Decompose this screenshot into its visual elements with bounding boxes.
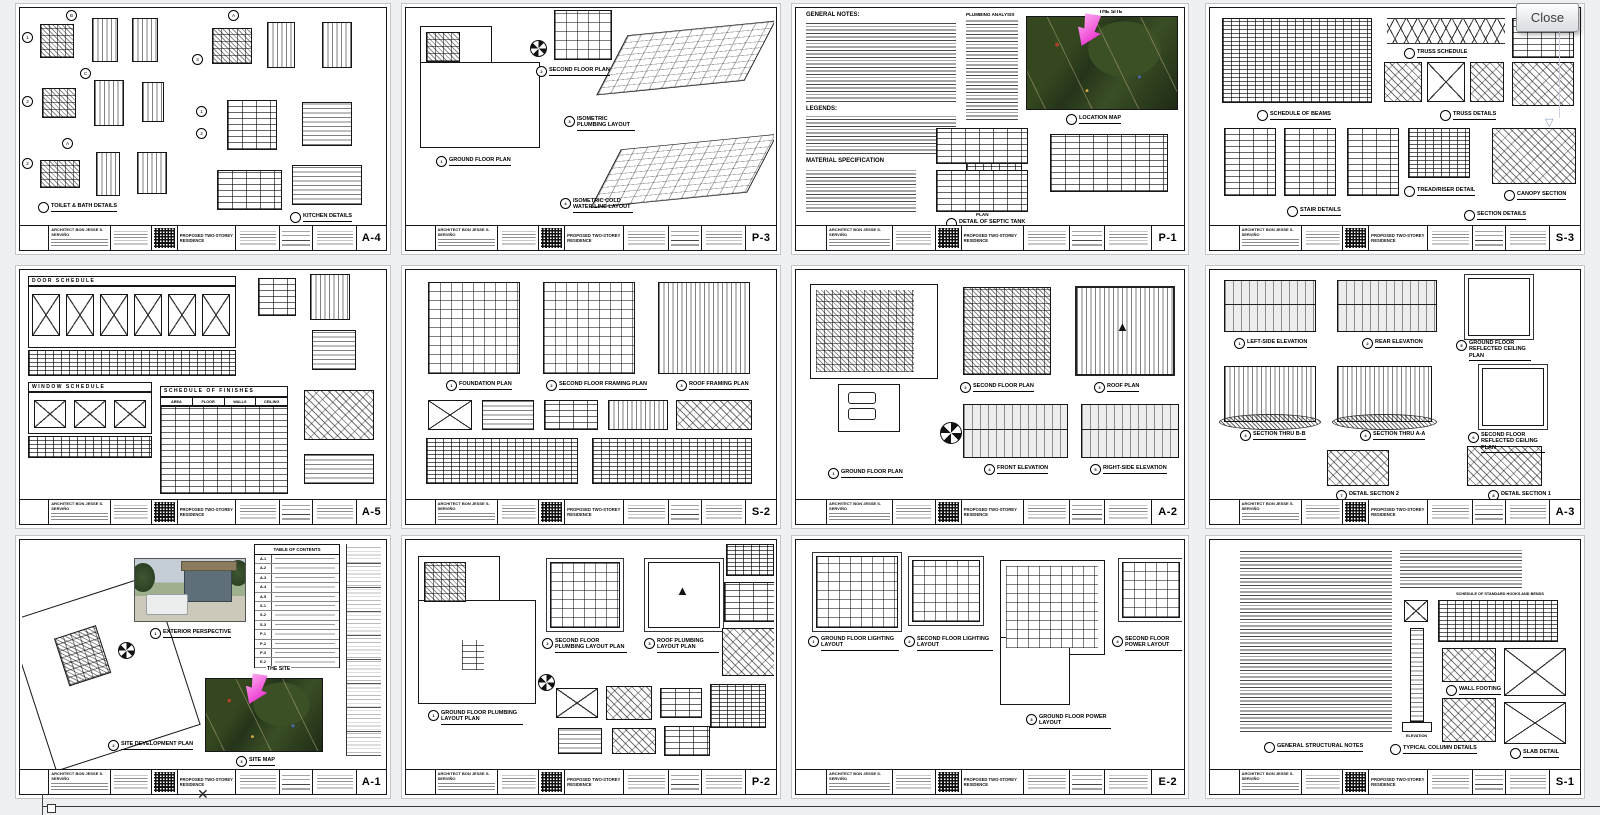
toc-row-code: A-5 bbox=[255, 593, 272, 601]
architect-name: ARCHITECT BON JESSE S. SERVIÑO bbox=[1242, 772, 1300, 782]
sheet-content: 2SITE DEVELOPMENT PLAN 1EXTERIOR PERSPEC… bbox=[22, 542, 384, 769]
titleblock-margin bbox=[20, 500, 49, 524]
sheet-s1[interactable]: GENERAL STRUCTURAL NOTES SCHEDULE OF STA… bbox=[1206, 536, 1584, 798]
stair-plan-figure bbox=[258, 278, 296, 316]
door-elevation-figure bbox=[32, 294, 60, 336]
seal-cell bbox=[893, 226, 936, 250]
beam-detail-figure bbox=[676, 400, 752, 430]
sheet-p3[interactable]: 1GROUND FLOOR PLAN 2SECOND FLOOR PLAN 3I… bbox=[402, 4, 780, 254]
grid-bubble: 1 bbox=[22, 32, 33, 43]
info-cell bbox=[313, 226, 357, 250]
window-elevation-figure bbox=[114, 400, 146, 428]
sheet-a4[interactable]: 1 B 2 C 2 A 3 A 1 2 TOILET & BATH DETAIL… bbox=[16, 4, 390, 254]
detail-section-2-figure bbox=[1327, 450, 1389, 486]
sheet-e2[interactable]: 1GROUND FLOOR LIGHTING LAYOUT 2SECOND FL… bbox=[792, 536, 1188, 798]
toc-row: S-1 bbox=[255, 602, 339, 611]
sheet-frame: 1GROUND FLOOR PLUMBING LAYOUT PLAN 2SECO… bbox=[405, 539, 777, 795]
architect-name: ARCHITECT BON JESSE S. SERVIÑO bbox=[51, 502, 108, 512]
info-cell bbox=[702, 770, 746, 794]
figure-caption: 4FRONT ELEVATION bbox=[984, 464, 1048, 475]
qr-seal bbox=[152, 770, 178, 794]
sheet-content: 1LEFT-SIDE ELEVATION 2REAR ELEVATION 5GR… bbox=[1212, 272, 1578, 499]
truss-detail-figure bbox=[1470, 62, 1504, 102]
revision-cell bbox=[1070, 770, 1105, 794]
revision-cell bbox=[669, 500, 702, 524]
north-arrow-icon bbox=[538, 674, 555, 691]
general-notes-text bbox=[806, 22, 956, 102]
stair-section-figure bbox=[312, 330, 356, 370]
micro-text bbox=[51, 239, 108, 246]
micro-text bbox=[1242, 239, 1300, 246]
project-title: PROPOSED TWO-STOREY RESIDENCE bbox=[180, 233, 234, 244]
toc-row: A-5 bbox=[255, 593, 339, 602]
qr-seal bbox=[936, 770, 962, 794]
toc-row-desc bbox=[272, 593, 339, 601]
callout-circle bbox=[38, 202, 49, 213]
sheet-frame: 2SITE DEVELOPMENT PLAN 1EXTERIOR PERSPEC… bbox=[19, 539, 387, 795]
callout-circle: 1 bbox=[446, 380, 457, 391]
callout-circle bbox=[1504, 190, 1515, 201]
callout-circle bbox=[1464, 210, 1475, 221]
sheet-content: 1FOUNDATION PLAN 2SECOND FLOOR FRAMING P… bbox=[408, 272, 774, 499]
toc-row-desc bbox=[272, 649, 339, 657]
footing-detail-figure bbox=[428, 400, 472, 430]
callout-circle: 5 bbox=[1090, 464, 1101, 475]
hooks-bends-table bbox=[1438, 600, 1558, 642]
titleblock-margin bbox=[406, 226, 436, 250]
figure-caption: 5GROUND FLOOR REFLECTED CEILING PLAN bbox=[1456, 340, 1531, 361]
stair-symbol bbox=[462, 640, 484, 670]
sheet-number: S-3 bbox=[1550, 226, 1580, 250]
sheet-s2[interactable]: 1FOUNDATION PLAN 2SECOND FLOOR FRAMING P… bbox=[402, 266, 780, 528]
title-block: ARCHITECT BON JESSE S. SERVIÑO PROPOSED … bbox=[796, 499, 1184, 524]
site-arrow-icon bbox=[1076, 10, 1108, 52]
figure-caption: GENERAL STRUCTURAL NOTES bbox=[1264, 742, 1363, 753]
callout-circle: 3 bbox=[644, 638, 655, 649]
support-detail-figure bbox=[1512, 62, 1574, 106]
page-edge-line bbox=[42, 794, 43, 815]
figure-caption: TOILET & BATH DETAILS bbox=[38, 202, 117, 213]
project-cell: PROPOSED TWO-STOREY RESIDENCE bbox=[962, 770, 1024, 794]
finishes-table-body bbox=[160, 406, 288, 494]
sheet-a2[interactable]: 1GROUND FLOOR PLAN 2SECOND FLOOR PLAN ▲ … bbox=[792, 266, 1188, 528]
figure-caption: 1FOUNDATION PLAN bbox=[446, 380, 512, 391]
grid-bubble: B bbox=[66, 10, 77, 21]
sheet-frame: 1 B 2 C 2 A 3 A 1 2 TOILET & BATH DETAIL… bbox=[19, 7, 387, 251]
micro-text bbox=[829, 783, 890, 790]
kitchen-elevation-figure bbox=[302, 102, 352, 146]
page-corner-marker bbox=[47, 804, 56, 813]
figure-caption: 3ROOF PLAN bbox=[1094, 382, 1139, 393]
seal-cell bbox=[1302, 226, 1343, 250]
callout-circle bbox=[1510, 748, 1521, 759]
qr-seal bbox=[152, 226, 178, 250]
title-block: ARCHITECT BON JESSE S. SERVIÑO PROPOSED … bbox=[1210, 769, 1580, 794]
tread-riser-figure bbox=[1408, 128, 1470, 178]
figure-caption: 1GROUND FLOOR PLAN bbox=[828, 468, 903, 479]
grid-bubble: 2 bbox=[22, 96, 33, 107]
owner-cell bbox=[236, 770, 280, 794]
figure-caption: 7DETAIL SECTION 2 bbox=[1336, 490, 1399, 499]
owner-cell bbox=[236, 226, 280, 250]
title-block: ARCHITECT BON JESSE S. SERVIÑO PROPOSED … bbox=[796, 225, 1184, 250]
figure-caption: SECTION DETAILS bbox=[1464, 210, 1526, 221]
figure-caption: TRUSS DETAILS bbox=[1440, 110, 1496, 121]
plumbing-detail-figure bbox=[724, 582, 774, 622]
project-title: PROPOSED TWO-STOREY RESIDENCE bbox=[1371, 777, 1425, 788]
callout-circle bbox=[1446, 685, 1457, 696]
column-base-figure bbox=[1402, 722, 1432, 732]
title-block: ARCHITECT BON JESSE S. SERVIÑO PROPOSED … bbox=[20, 499, 386, 524]
sheet-number: A-3 bbox=[1550, 500, 1580, 524]
building-footprint bbox=[54, 625, 111, 686]
project-cell: PROPOSED TWO-STOREY RESIDENCE bbox=[1369, 500, 1428, 524]
revision-cell bbox=[669, 226, 702, 250]
toc-title: TABLE OF CONTENTS bbox=[255, 545, 339, 555]
toilet-elevation-figure bbox=[132, 18, 158, 62]
stair-figure bbox=[1284, 128, 1336, 196]
titleblock-margin bbox=[406, 770, 436, 794]
crosshair-artifact-icon: ✕ bbox=[197, 786, 209, 803]
section-aa-figure bbox=[1337, 366, 1432, 422]
sheet-number: P-3 bbox=[746, 226, 776, 250]
schedule-table bbox=[426, 438, 578, 484]
figure-caption: SLAB DETAIL bbox=[1510, 748, 1559, 759]
project-cell: PROPOSED TWO-STOREY RESIDENCE bbox=[178, 226, 237, 250]
material-spec-heading: MATERIAL SPECIFICATION bbox=[806, 158, 884, 164]
toc-row-desc bbox=[272, 564, 339, 572]
figure-caption: LOCATION MAP bbox=[1066, 114, 1121, 125]
titleblock-margin bbox=[796, 500, 827, 524]
truss-detail-figure bbox=[1427, 62, 1465, 102]
grid-bubble: 3 bbox=[192, 54, 203, 65]
toc-row: P-2 bbox=[255, 640, 339, 649]
figure-caption: DETAIL OF SEPTIC TANK bbox=[946, 218, 1025, 225]
callout-circle: 8 bbox=[1488, 490, 1499, 499]
owner-cell bbox=[1428, 500, 1472, 524]
septic-tank-plan-figure bbox=[936, 170, 1028, 212]
callout-circle: 4 bbox=[560, 198, 571, 209]
figure-caption: 2REAR ELEVATION bbox=[1362, 338, 1423, 349]
toc-row: A-4 bbox=[255, 583, 339, 592]
sheet-frame: GENERAL NOTES: LEGENDS: MATERIAL SPECIFI… bbox=[795, 7, 1185, 251]
roof-framing-figure bbox=[658, 282, 750, 374]
stair-section-figure bbox=[310, 274, 350, 320]
beam-detail-figure bbox=[482, 400, 534, 430]
architect-cell: ARCHITECT BON JESSE S. SERVIÑO bbox=[436, 770, 499, 794]
callout-circle: 2 bbox=[536, 66, 547, 77]
door-schedule-text-rows bbox=[28, 350, 236, 376]
toilet-elevation-figure bbox=[322, 22, 352, 68]
toilet-plan-figure bbox=[212, 28, 252, 64]
sheet-a3[interactable]: 1LEFT-SIDE ELEVATION 2REAR ELEVATION 5GR… bbox=[1206, 266, 1584, 528]
toc-row: A-2 bbox=[255, 564, 339, 573]
project-cell: PROPOSED TWO-STOREY RESIDENCE bbox=[962, 226, 1024, 250]
project-cell: PROPOSED TWO-STOREY RESIDENCE bbox=[1369, 770, 1428, 794]
project-cell: PROPOSED TWO-STOREY RESIDENCE bbox=[565, 226, 624, 250]
revision-strip bbox=[346, 544, 381, 756]
toc-row-code: P-3 bbox=[255, 649, 272, 657]
plumbing-detail-figure bbox=[612, 728, 656, 754]
owner-cell bbox=[236, 500, 280, 524]
callout-circle: 4 bbox=[1360, 430, 1371, 441]
figure-caption: TREAD/RISER DETAIL bbox=[1404, 186, 1475, 197]
callout-circle: 3 bbox=[1240, 430, 1251, 441]
info-cell bbox=[313, 500, 357, 524]
door-elevation-figure bbox=[168, 294, 196, 336]
column-section-figure bbox=[1404, 600, 1428, 622]
ground-floor-plan-figure bbox=[420, 62, 540, 148]
callout-circle bbox=[1287, 206, 1298, 217]
micro-text bbox=[51, 513, 108, 520]
sheet-p1[interactable]: GENERAL NOTES: LEGENDS: MATERIAL SPECIFI… bbox=[792, 4, 1188, 254]
sheet-a5[interactable]: DOOR SCHEDULE WINDOW SCHEDULE SCHEDULE O… bbox=[16, 266, 390, 528]
ground-floor-rcp-figure bbox=[1468, 278, 1530, 336]
front-elevation-figure bbox=[963, 404, 1068, 458]
figure-caption: 3SECTION THRU B-B bbox=[1240, 430, 1306, 441]
north-arrow-icon bbox=[530, 40, 547, 57]
architect-name: ARCHITECT BON JESSE S. SERVIÑO bbox=[438, 228, 496, 238]
callout-circle: 3 bbox=[1094, 382, 1105, 393]
title-block: ARCHITECT BON JESSE S. SERVIÑO PROPOSED … bbox=[1210, 225, 1580, 250]
toc-row-code: P-2 bbox=[255, 640, 272, 648]
qr-seal bbox=[1343, 770, 1369, 794]
north-arrow-icon bbox=[940, 422, 962, 444]
callout-circle: 3 bbox=[236, 756, 247, 767]
toilet-elevation-figure bbox=[142, 82, 164, 122]
titleblock-margin bbox=[796, 226, 827, 250]
callout-circle: 2 bbox=[904, 636, 915, 647]
sheet-frame: 1FOUNDATION PLAN 2SECOND FLOOR FRAMING P… bbox=[405, 269, 777, 525]
sheet-p2[interactable]: 1GROUND FLOOR PLUMBING LAYOUT PLAN 2SECO… bbox=[402, 536, 780, 798]
seal-cell bbox=[111, 770, 151, 794]
car-symbol bbox=[848, 392, 876, 404]
beam-schedule-table bbox=[1222, 18, 1372, 103]
sheet-content: SCHEDULE OF BEAMS TRUSS SCHEDULE TRUSS D… bbox=[1212, 10, 1578, 225]
truck-render bbox=[146, 594, 188, 615]
sheet-frame: GENERAL STRUCTURAL NOTES SCHEDULE OF STA… bbox=[1209, 539, 1581, 795]
toc-row-desc bbox=[272, 611, 339, 619]
toc-row-desc bbox=[272, 583, 339, 591]
legends-heading: LEGENDS: bbox=[806, 106, 837, 112]
callout-circle bbox=[1066, 114, 1077, 125]
revision-cell bbox=[280, 770, 313, 794]
title-block: ARCHITECT BON JESSE S. SERVIÑO PROPOSED … bbox=[406, 499, 776, 524]
project-cell: PROPOSED TWO-STOREY RESIDENCE bbox=[178, 500, 237, 524]
micro-text bbox=[829, 513, 890, 520]
toc-row: S-3 bbox=[255, 621, 339, 630]
figure-caption: 5RIGHT-SIDE ELEVATION bbox=[1090, 464, 1167, 475]
ground-floor-lighting-figure bbox=[816, 556, 898, 628]
figure-caption: 3ROOF PLUMBING LAYOUT PLAN bbox=[644, 638, 719, 653]
seal-cell bbox=[111, 500, 151, 524]
architect-cell: ARCHITECT BON JESSE S. SERVIÑO bbox=[1240, 500, 1303, 524]
toc-row: A-1 bbox=[255, 555, 339, 564]
info-cell bbox=[1105, 500, 1152, 524]
qr-seal bbox=[152, 500, 178, 524]
ground-hatch bbox=[1219, 414, 1321, 430]
figure-caption: 2SECOND FLOOR PLAN bbox=[536, 66, 610, 77]
seal-cell bbox=[111, 226, 151, 250]
architect-cell: ARCHITECT BON JESSE S. SERVIÑO bbox=[827, 226, 893, 250]
toilet-plan-figure bbox=[40, 160, 80, 188]
sheet-number: S-2 bbox=[746, 500, 776, 524]
railing-detail-figure bbox=[304, 454, 374, 484]
plumbing-detail-figure bbox=[660, 688, 702, 718]
finishes-column-header: CEILING bbox=[256, 398, 287, 405]
sheet-number: S-1 bbox=[1550, 770, 1580, 794]
project-title: PROPOSED TWO-STOREY RESIDENCE bbox=[567, 233, 621, 244]
sheet-number: A-1 bbox=[357, 770, 386, 794]
toc-row: A-3 bbox=[255, 574, 339, 583]
plan-label: PLAN bbox=[976, 212, 989, 217]
sheet-number: A-5 bbox=[357, 500, 386, 524]
callout-circle: 2 bbox=[108, 740, 119, 751]
architect-cell: ARCHITECT BON JESSE S. SERVIÑO bbox=[436, 226, 499, 250]
toilet-elevation-figure bbox=[92, 18, 118, 62]
info-cell bbox=[1105, 226, 1152, 250]
sheet-a1[interactable]: 2SITE DEVELOPMENT PLAN 1EXTERIOR PERSPEC… bbox=[16, 536, 390, 798]
grid-bubble: C bbox=[80, 68, 91, 79]
sheet-frame: 1LEFT-SIDE ELEVATION 2REAR ELEVATION 5GR… bbox=[1209, 269, 1581, 525]
second-floor-framing-figure bbox=[543, 282, 635, 374]
callout-circle: 5 bbox=[1456, 340, 1467, 351]
revision-cell bbox=[280, 500, 313, 524]
next-row-page-edge bbox=[42, 806, 1600, 807]
sheet-content: 1 B 2 C 2 A 3 A 1 2 TOILET & BATH DETAIL… bbox=[22, 10, 384, 225]
owner-cell bbox=[624, 500, 668, 524]
architect-cell: ARCHITECT BON JESSE S. SERVIÑO bbox=[1240, 770, 1303, 794]
car-symbol bbox=[848, 408, 876, 420]
sheet-number: A-4 bbox=[357, 226, 386, 250]
sheet-frame: 1GROUND FLOOR PLAN 2SECOND FLOOR PLAN ▲ … bbox=[795, 269, 1185, 525]
figure-caption: TYPICAL COLUMN DETAILS bbox=[1390, 744, 1477, 755]
project-title: PROPOSED TWO-STOREY RESIDENCE bbox=[1371, 507, 1425, 518]
figure-caption: 3SITE MAP bbox=[236, 756, 275, 767]
sheet-content: GENERAL NOTES: LEGENDS: MATERIAL SPECIFI… bbox=[798, 10, 1182, 225]
sheet-content: 1GROUND FLOOR PLUMBING LAYOUT PLAN 2SECO… bbox=[408, 542, 774, 769]
project-title: PROPOSED TWO-STOREY RESIDENCE bbox=[567, 777, 621, 788]
material-spec-text bbox=[806, 168, 916, 212]
architect-cell: ARCHITECT BON JESSE S. SERVIÑO bbox=[1240, 226, 1303, 250]
callout-circle: 1 bbox=[1234, 338, 1245, 349]
callout-circle: 1 bbox=[828, 468, 839, 479]
sheet-s3[interactable]: SCHEDULE OF BEAMS TRUSS SCHEDULE TRUSS D… bbox=[1206, 4, 1584, 254]
sheet-content: 1GROUND FLOOR PLAN 2SECOND FLOOR PLAN 3I… bbox=[408, 10, 774, 225]
grid-bubble: 2 bbox=[22, 158, 33, 169]
wet-area-hatch bbox=[426, 32, 460, 62]
sheet-content: DOOR SCHEDULE WINDOW SCHEDULE SCHEDULE O… bbox=[22, 272, 384, 499]
qr-seal bbox=[1343, 500, 1369, 524]
info-cell bbox=[1506, 500, 1550, 524]
owner-cell bbox=[1428, 226, 1472, 250]
plumbing-detail-figure bbox=[556, 688, 598, 718]
architect-cell: ARCHITECT BON JESSE S. SERVIÑO bbox=[49, 770, 111, 794]
door-elevation-figure bbox=[66, 294, 94, 336]
toc-row-code: S-3 bbox=[255, 621, 272, 629]
second-floor-rcp-figure bbox=[1482, 368, 1544, 426]
revision-cell bbox=[1070, 226, 1105, 250]
owner-cell bbox=[624, 226, 668, 250]
info-cell bbox=[1506, 226, 1550, 250]
left-side-elevation-figure bbox=[1224, 280, 1316, 332]
exterior-perspective-render bbox=[134, 558, 246, 622]
figure-caption: 4SECTION THRU A-A bbox=[1360, 430, 1425, 441]
window-elevation-figure bbox=[34, 400, 66, 428]
toc-row-code: P-1 bbox=[255, 630, 272, 638]
plumbing-analysis-heading: PLUMBING ANALYSIS bbox=[966, 12, 1014, 17]
beam-detail-figure bbox=[544, 400, 598, 430]
callout-circle: 1 bbox=[150, 628, 161, 639]
finishes-columns: AREA FLOOR WALLS CEILING bbox=[160, 397, 288, 406]
figure-caption: 2SITE DEVELOPMENT PLAN bbox=[108, 740, 193, 751]
close-button[interactable]: Close bbox=[1516, 3, 1579, 32]
figure-caption: TRUSS SCHEDULE bbox=[1404, 48, 1467, 59]
architect-cell: ARCHITECT BON JESSE S. SERVIÑO bbox=[49, 500, 111, 524]
figure-caption: CANOPY SECTION bbox=[1504, 190, 1566, 201]
callout-circle: 2 bbox=[1362, 338, 1373, 349]
seal-cell bbox=[498, 770, 539, 794]
callout-circle: 2 bbox=[542, 638, 553, 649]
column-elevation-figure bbox=[1410, 628, 1424, 722]
toc-row-desc bbox=[272, 630, 339, 638]
figure-caption: 4ISOMETRIC COLD WATER-LINE LAYOUT bbox=[560, 198, 633, 213]
toc-row-code: A-2 bbox=[255, 564, 272, 572]
sheet-frame: SCHEDULE OF BEAMS TRUSS SCHEDULE TRUSS D… bbox=[1209, 7, 1581, 251]
door-elevation-figure bbox=[100, 294, 128, 336]
owner-cell bbox=[1428, 770, 1472, 794]
titleblock-margin bbox=[1210, 500, 1240, 524]
figure-caption: 6SECOND FLOOR REFLECTED CEILING PLAN bbox=[1468, 432, 1545, 453]
info-cell bbox=[702, 500, 746, 524]
scrollbar-track[interactable] bbox=[1559, 32, 1560, 118]
callout-circle: 2 bbox=[546, 380, 557, 391]
figure-caption: 2SECOND FLOOR LIGHTING LAYOUT bbox=[904, 636, 993, 651]
micro-text bbox=[438, 513, 496, 520]
callout-circle bbox=[290, 212, 301, 223]
toc-row-code: S-1 bbox=[255, 602, 272, 610]
door-elevation-figure bbox=[134, 294, 162, 336]
toc-row: P-1 bbox=[255, 630, 339, 639]
owner-cell bbox=[1024, 770, 1071, 794]
architect-name: ARCHITECT BON JESSE S. SERVIÑO bbox=[1242, 502, 1300, 512]
second-floor-plumbing-figure bbox=[550, 562, 620, 628]
seal-cell bbox=[893, 500, 936, 524]
titleblock-margin bbox=[1210, 770, 1240, 794]
toilet-elevation-figure bbox=[137, 152, 167, 194]
callout-circle: 2 bbox=[960, 382, 971, 393]
ground-hatch bbox=[1332, 414, 1437, 430]
second-floor-plan-figure bbox=[963, 287, 1051, 375]
plumbing-detail-figure bbox=[664, 726, 710, 756]
house-roof-render bbox=[181, 561, 237, 571]
toc-row-code: A-3 bbox=[255, 574, 272, 582]
title-block: ARCHITECT BON JESSE S. SERVIÑO PROPOSED … bbox=[406, 769, 776, 794]
callout-circle: 4 bbox=[984, 464, 995, 475]
sheet-frame: DOOR SCHEDULE WINDOW SCHEDULE SCHEDULE O… bbox=[19, 269, 387, 525]
seal-cell bbox=[498, 226, 539, 250]
north-arrow-icon bbox=[118, 642, 135, 659]
elevation-label: ELEVATION bbox=[1406, 734, 1427, 738]
window-schedule-header: WINDOW SCHEDULE bbox=[28, 382, 152, 392]
micro-text bbox=[438, 239, 496, 246]
scroll-down-icon[interactable]: ▽ bbox=[1545, 116, 1553, 129]
architect-name: ARCHITECT BON JESSE S. SERVIÑO bbox=[51, 228, 108, 238]
callout-circle: 3 bbox=[1026, 714, 1037, 725]
titleblock-margin bbox=[796, 770, 827, 794]
project-title: PROPOSED TWO-STOREY RESIDENCE bbox=[964, 233, 1021, 244]
stair-figure bbox=[1347, 128, 1399, 196]
